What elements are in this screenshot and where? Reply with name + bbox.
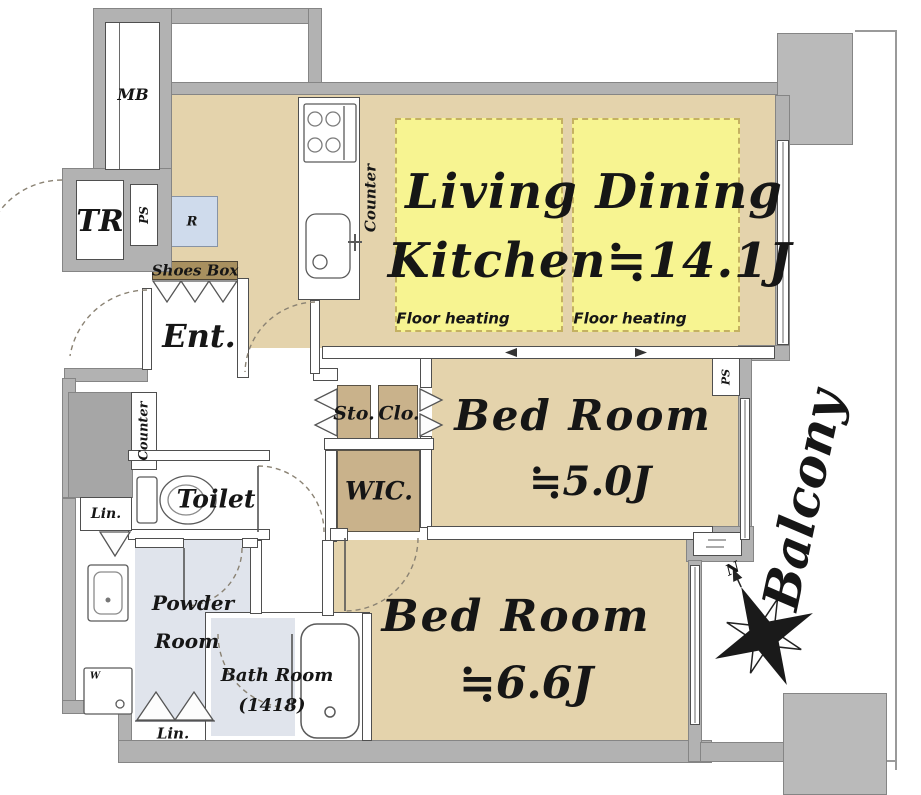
label-storage: Sto. — [333, 405, 374, 424]
label-trunk-room: TR — [76, 207, 123, 237]
label-linen-lower: Lin. — [157, 727, 189, 742]
label-counter-hall: Counter — [138, 401, 151, 460]
entrance-door-arc — [70, 290, 147, 356]
wall-arrow-marks — [505, 348, 647, 357]
label-counter-kitchen: Counter — [364, 164, 379, 232]
label-closet: Clo. — [378, 405, 419, 424]
label-bath-line2: (1418) — [238, 697, 305, 715]
label-wic: WIC. — [345, 479, 413, 504]
toilet-door-arc — [258, 466, 324, 532]
floor-plan: MB TR PS R Shoes Box Ent. Counter Counte… — [0, 0, 921, 795]
label-meter-box: MB — [117, 87, 148, 103]
label-bedroom1-name: Bed Room — [454, 395, 712, 437]
label-powder-line1: Powder — [152, 593, 234, 613]
trunk-room-door-arc — [0, 180, 62, 258]
closet-doors-icon — [420, 389, 442, 436]
label-refrigerator: R — [187, 216, 198, 229]
label-bedroom2-name: Bed Room — [381, 595, 650, 639]
shoes-box-doors-icon — [153, 281, 237, 302]
label-shoes-box: Shoes Box — [152, 264, 239, 279]
label-ldk-line2: Kitchen≒14.1J — [388, 237, 793, 285]
label-bath-line1: Bath Room — [221, 667, 334, 685]
ldk-door-arc — [245, 302, 315, 372]
label-washer: W — [90, 673, 100, 682]
label-bedroom1-area: ≒5.0J — [529, 462, 651, 502]
vent-mark — [706, 540, 726, 547]
label-ldk-line1: Living Dining — [405, 168, 783, 216]
label-floor-heating-right: Floor heating — [573, 312, 686, 327]
kitchen-sink-icon — [306, 214, 362, 278]
stove-icon — [304, 104, 356, 162]
label-linen-upper: Lin. — [91, 507, 121, 521]
linen-lower-door-icon — [137, 692, 213, 720]
label-powder-line2: Room — [155, 631, 219, 651]
label-toilet: Toilet — [177, 487, 256, 512]
vanity-sink-icon — [88, 565, 128, 621]
label-pipe-shaft: PS — [138, 206, 150, 224]
linen-upper-door-icon — [100, 532, 130, 556]
label-entrance: Ent. — [162, 320, 236, 352]
label-pipe-shaft-2: PS — [721, 369, 732, 385]
label-floor-heating-left: Floor heating — [396, 312, 509, 327]
label-bedroom2-area: ≒6.6J — [459, 662, 593, 706]
